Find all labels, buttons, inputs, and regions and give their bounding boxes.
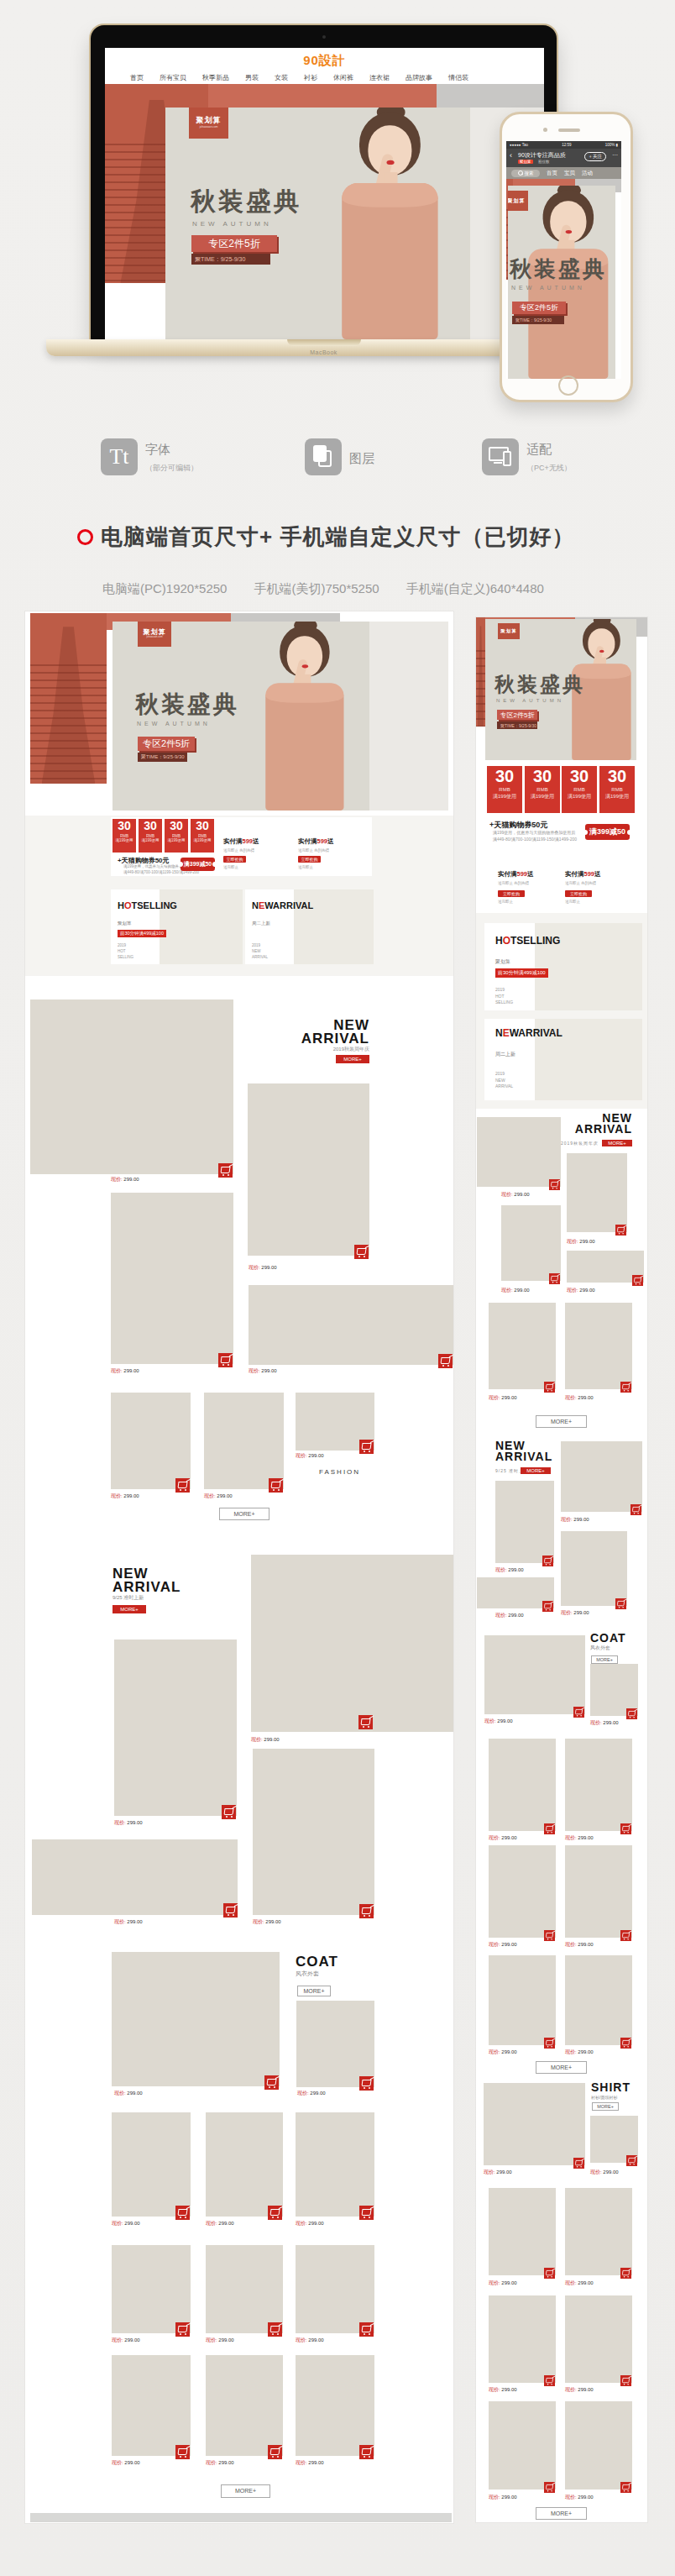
product-price: 现价: 299.00: [565, 2386, 594, 2394]
font-icon: Tt: [101, 438, 138, 475]
add-to-cart-button[interactable]: [573, 2158, 584, 2169]
product-image-placeholder[interactable]: [565, 2295, 632, 2383]
product-price: 现价: 299.00: [567, 1287, 595, 1294]
add-to-cart-button[interactable]: [632, 1275, 643, 1286]
product-price: 现价: 299.00: [489, 2494, 517, 2501]
add-to-cart-button[interactable]: [544, 2038, 555, 2049]
feature-font: Tt 字体（部分可编辑）: [101, 438, 198, 475]
product-price: 现价: 299.00: [111, 1367, 139, 1375]
add-to-cart-button[interactable]: [615, 1598, 626, 1609]
product-image-placeholder[interactable]: [489, 2188, 556, 2275]
nav-item[interactable]: 男装: [245, 73, 259, 82]
add-to-cart-button[interactable]: [544, 1930, 555, 1941]
iphone-mockup: ●●●●● Tao 12:59 100% ▮ ‹ 90设计专注高品质 聚划算 粉…: [500, 112, 633, 402]
add-to-cart-button[interactable]: [359, 2206, 374, 2220]
banner[interactable]: 聚划算 秋装盛典 NEW AUTUMN 专区2件5折 聚TIME：9/25-9/…: [485, 619, 636, 760]
add-to-cart-button[interactable]: [359, 2076, 374, 2091]
voucher-line: 满449-80/满700-100/满1199-150/满1499-200: [493, 837, 577, 842]
product-price: 现价: 299.00: [489, 2280, 517, 2287]
headline: 电脑端首页尺寸+ 手机端自定义尺寸（已切好）: [77, 522, 574, 552]
model-photo: [337, 110, 447, 339]
page-footer: [30, 2513, 452, 2522]
coupon-30rmb[interactable]: 30RMB满199使用: [562, 766, 597, 813]
more-button[interactable]: MORE+: [536, 1415, 587, 1428]
add-to-cart-button[interactable]: [359, 2445, 374, 2459]
banner-subtitle: NEW AUTUMN: [511, 285, 585, 291]
add-to-cart-button[interactable]: [269, 1478, 283, 1493]
product-image-placeholder[interactable]: [296, 2355, 374, 2456]
gift-note: 送完即止: [498, 900, 513, 904]
banner-title: 秋装盛典: [510, 254, 607, 284]
add-to-cart-button[interactable]: [264, 2075, 279, 2090]
gift-note: 送完即止: [223, 865, 238, 869]
coupon-30rmb[interactable]: 30RMB满199使用: [165, 819, 188, 853]
product-image-placeholder[interactable]: [111, 1393, 191, 1489]
product-image-placeholder[interactable]: [32, 1839, 238, 1915]
add-to-cart-button[interactable]: [626, 1708, 637, 1719]
product-image-placeholder[interactable]: [484, 1635, 585, 1714]
product-image-placeholder[interactable]: [489, 1845, 556, 1938]
more-button[interactable]: MORE+: [521, 1467, 551, 1474]
gift-offer: 实付满599送 送完即止 先到先得: [565, 864, 601, 885]
product-price: 现价: 299.00: [501, 1191, 530, 1199]
coupon-30rmb[interactable]: 30RMB满199使用: [191, 819, 214, 853]
add-to-cart-button[interactable]: [626, 2155, 637, 2166]
product-price: 现价: 299.00: [561, 1609, 589, 1617]
add-to-cart-button[interactable]: [175, 2445, 190, 2459]
product-price: 现价: 299.00: [561, 1516, 589, 1524]
shop-title: 90设计专注高品质: [518, 151, 566, 160]
product-price: 现价: 299.00: [204, 1493, 233, 1500]
poster-canvas: 90設計 首页所有宝贝秋季新品男装女装衬衫休闲裤连衣裙品牌故事情侣装 聚划算ju…: [0, 0, 675, 2576]
add-to-cart-button[interactable]: [573, 1707, 584, 1718]
juhuasuan-badge: 聚划算juhuasuan.com: [189, 108, 228, 139]
battery-label: 100% ▮: [605, 143, 618, 147]
product-image-placeholder[interactable]: [489, 2295, 556, 2383]
product-image-placeholder[interactable]: [253, 1749, 374, 1915]
follow-button[interactable]: ＋关注: [584, 152, 607, 161]
banner-subtitle: NEW AUTUMN: [137, 721, 211, 727]
product-image-placeholder[interactable]: [114, 1640, 237, 1816]
banner-subtitle: NEW AUTUMN: [496, 698, 564, 703]
add-to-cart-button[interactable]: [544, 1382, 555, 1393]
add-to-cart-button[interactable]: [549, 1273, 560, 1284]
more-button[interactable]: MORE+: [536, 2507, 587, 2520]
add-to-cart-button[interactable]: [620, 2482, 631, 2493]
more-icon[interactable]: ⋯: [612, 152, 618, 159]
add-to-cart-button[interactable]: [358, 1715, 373, 1729]
banner-title: 秋装盛典: [494, 671, 585, 698]
product-price: 现价: 299.00: [590, 1719, 619, 1727]
product-price: 现价: 299.00: [253, 1918, 281, 1926]
add-to-cart-button[interactable]: [544, 2482, 555, 2493]
product-price: 现价: 299.00: [114, 2090, 143, 2097]
add-to-cart-button[interactable]: [175, 2322, 190, 2337]
banner-title: 秋装盛典: [135, 689, 239, 721]
add-to-cart-button[interactable]: [218, 1163, 233, 1178]
product-image-placeholder[interactable]: [112, 1952, 280, 2086]
product-image-placeholder[interactable]: [112, 2245, 191, 2333]
nav-item[interactable]: 休闲裤: [333, 73, 353, 82]
add-to-cart-button[interactable]: [542, 1556, 553, 1566]
product-price: 现价: 299.00: [501, 1287, 530, 1294]
product-image-placeholder[interactable]: [30, 999, 233, 1174]
juhuasuan-badge: 聚划算: [498, 623, 520, 639]
product-price: 现价: 299.00: [206, 2220, 234, 2227]
product-image-placeholder[interactable]: [561, 1441, 642, 1512]
camera-icon: [543, 128, 547, 132]
add-to-cart-button[interactable]: [542, 1601, 553, 1612]
grab-button[interactable]: 立即抢购: [498, 890, 525, 897]
product-image-placeholder[interactable]: [206, 2245, 283, 2333]
banner-cta-button[interactable]: 专区2件5折: [191, 235, 277, 252]
bullet-icon: [77, 529, 93, 545]
banner-cta-button[interactable]: 专区2件5折: [138, 737, 195, 751]
product-image-placeholder[interactable]: [565, 2401, 632, 2489]
carrier-label: ●●●●● Tao: [510, 143, 528, 147]
product-image-placeholder[interactable]: [251, 1555, 453, 1732]
product-image-placeholder[interactable]: [489, 1303, 556, 1389]
grab-button[interactable]: 立即抢购: [298, 856, 321, 863]
product-price: 现价: 299.00: [296, 2459, 324, 2467]
coupon-30rmb[interactable]: 30RMB满199使用: [599, 766, 635, 813]
dimension-specs: 电脑端(PC)1920*5250 手机端(美切)750*5250 手机端(自定义…: [102, 581, 544, 597]
macbook-screen: 90設計 首页所有宝贝秋季新品男装女装衬衫休闲裤连衣裙品牌故事情侣装 聚划算ju…: [105, 48, 544, 339]
headline-text: 电脑端首页尺寸+ 手机端自定义尺寸（已切好）: [101, 522, 574, 552]
product-price: 现价: 299.00: [206, 2459, 234, 2467]
nav-item[interactable]: 品牌故事: [406, 73, 432, 82]
product-image-placeholder[interactable]: [565, 1303, 632, 1389]
product-price: 现价: 299.00: [489, 1834, 517, 1842]
section-new-arrival-2: NEWARRIVAL 9/25 准时上新: [112, 1567, 181, 1601]
nav-item[interactable]: 连衣裙: [369, 73, 390, 82]
add-to-cart-button[interactable]: [268, 2445, 282, 2459]
more-button[interactable]: MORE+: [591, 1655, 618, 1664]
tab-item[interactable]: 活动: [582, 170, 593, 177]
add-to-cart-button[interactable]: [222, 1805, 236, 1819]
juhuasuan-badge: 聚划算juhuasuan.com: [138, 622, 171, 647]
banner-time: 聚TIME：9/25-9/30: [512, 316, 564, 324]
banner-time: 聚TIME：9/25-9/30: [191, 254, 270, 265]
banner-title: 秋装盛典: [191, 185, 301, 219]
product-price: 现价: 299.00: [251, 1736, 280, 1744]
feature-sub: （PC+无线）: [526, 463, 572, 474]
product-price: 现价: 299.00: [296, 2220, 324, 2227]
add-to-cart-button[interactable]: [620, 1382, 631, 1393]
model-photo: [262, 623, 351, 811]
status-bar: ●●●●● Tao 12:59 100% ▮: [506, 141, 621, 149]
section-new-arrival-1: NEWARRIVAL 2019秋装周年庆: [301, 1019, 369, 1052]
product-price: 现价: 299.00: [296, 1452, 324, 1460]
banner-subtitle: NEW AUTUMN: [192, 220, 272, 228]
product-image-placeholder[interactable]: [565, 2188, 632, 2275]
product-price: 现价: 299.00: [111, 1493, 139, 1500]
product-image-placeholder[interactable]: [249, 1285, 453, 1365]
add-to-cart-button[interactable]: [268, 2322, 282, 2337]
search-input[interactable]: 搜索: [511, 170, 540, 177]
add-to-cart-button[interactable]: [438, 1354, 453, 1368]
product-image-placeholder[interactable]: [296, 2001, 374, 2087]
section-sub: 2019秋装周年庆: [561, 1141, 599, 1146]
nav-item[interactable]: 首页: [130, 73, 144, 82]
product-image-placeholder[interactable]: [296, 2245, 374, 2333]
gift-offer: 实付满599送 送完即止 先到先得: [223, 832, 259, 853]
more-button[interactable]: MORE+: [112, 1605, 146, 1613]
hot-selling-card[interactable]: HOTSELLING 聚划算 前30分钟满499减100 2019HOTSELL…: [111, 889, 243, 964]
nav-item[interactable]: 情侣装: [448, 73, 468, 82]
product-image-placeholder[interactable]: [489, 1955, 556, 2045]
product-price: 现价: 299.00: [489, 1941, 517, 1949]
product-image-placeholder[interactable]: [561, 1531, 627, 1606]
eiffel-image: [476, 617, 485, 727]
product-price: 现价: 299.00: [565, 2280, 594, 2287]
tab-item[interactable]: 首页: [547, 170, 557, 177]
add-to-cart-button[interactable]: [175, 2206, 190, 2220]
coupon-30rmb[interactable]: 30RMB满199使用: [139, 819, 162, 853]
new-arrival-card[interactable]: NEWARRIVAL 周二上新 2019NEWARRIVAL: [245, 889, 374, 964]
banner-faded-right: [369, 622, 448, 811]
feature-layers: 图层: [305, 438, 374, 475]
fashion-label: FASHION: [319, 1468, 360, 1476]
product-image-placeholder[interactable]: [477, 1117, 561, 1187]
coupon-30rmb[interactable]: 30RMB满199使用: [112, 819, 136, 853]
product-image-placeholder[interactable]: [112, 2355, 191, 2456]
webcam-icon: [322, 35, 326, 39]
product-price: 现价: 299.00: [296, 2337, 324, 2344]
section-new-arrival-2: NEWARRIVAL: [495, 1440, 552, 1462]
product-image-placeholder[interactable]: [495, 1481, 554, 1563]
product-price: 现价: 299.00: [206, 2337, 234, 2344]
add-to-cart-button[interactable]: [620, 1823, 631, 1834]
gift-note: 送完即止: [565, 900, 580, 904]
gift-note: 送完即止: [298, 865, 313, 869]
product-price: 现价: 299.00: [565, 1834, 594, 1842]
add-to-cart-button[interactable]: [631, 1504, 641, 1515]
product-image-placeholder[interactable]: [484, 2083, 585, 2165]
product-price: 现价: 299.00: [489, 1394, 517, 1402]
product-price: 现价: 299.00: [111, 1176, 139, 1183]
pc-page-preview[interactable]: 聚划算juhuasuan.com 秋装盛典 NEW AUTUMN 专区2件5折 …: [25, 611, 453, 2523]
product-price: 现价: 299.00: [489, 2386, 517, 2394]
add-to-cart-button[interactable]: [549, 1179, 560, 1190]
add-to-cart-button[interactable]: [359, 2322, 374, 2337]
add-to-cart-button[interactable]: [359, 1440, 374, 1454]
product-price: 现价: 299.00: [484, 1718, 513, 1725]
more-button[interactable]: MORE+: [592, 2102, 619, 2111]
add-to-cart-button[interactable]: [223, 1903, 238, 1918]
home-button[interactable]: [558, 375, 578, 396]
product-image-placeholder[interactable]: [206, 2112, 283, 2217]
eiffel-image: [30, 613, 107, 784]
product-image-placeholder[interactable]: [489, 1739, 556, 1831]
shop-header: ‹ 90设计专注高品质 聚划算 粉丝数 ＋关注 ⋯: [506, 149, 621, 167]
banner[interactable]: 聚划算juhuasuan.com 秋装盛典 NEW AUTUMN 专区2件5折 …: [165, 108, 470, 339]
feature-adapt: 适配（PC+无线）: [482, 438, 572, 475]
nav-item[interactable]: 女装: [275, 73, 288, 82]
more-button[interactable]: MORE+: [297, 1986, 331, 1996]
coupon-30rmb[interactable]: 30RMB满199使用: [487, 766, 522, 813]
coupon-ticket[interactable]: 满399减50: [585, 824, 630, 840]
feature-label: 图层: [349, 451, 374, 467]
product-price: 现价: 299.00: [112, 2220, 140, 2227]
new-arrival-card[interactable]: NEWARRIVAL 周二上新 2019NEWARRIVAL: [484, 1019, 642, 1100]
nav-item[interactable]: 秋季新品: [202, 73, 229, 82]
devices-icon: [482, 438, 519, 475]
section-new-arrival-1: NEWARRIVAL: [575, 1113, 632, 1135]
banner-cta-button[interactable]: 专区2件5折: [497, 710, 537, 720]
banner-strip-gray: [437, 84, 544, 108]
product-price: 现价: 299.00: [489, 2049, 517, 2056]
add-to-cart-button[interactable]: [544, 2375, 555, 2386]
banner[interactable]: 聚划算 秋装盛典 NEW AUTUMN 专区2件5折 聚TIME：9/25-9/…: [508, 186, 615, 379]
product-image-placeholder[interactable]: [489, 2401, 556, 2489]
add-to-cart-button[interactable]: [175, 1478, 190, 1493]
dim-mobile-cut: 手机端(美切)750*5250: [254, 581, 379, 597]
product-price: 现价: 299.00: [249, 1264, 277, 1272]
grab-button[interactable]: 立即抢购: [565, 890, 592, 897]
gift-offer: 实付满599送 送完即止 先到先得: [298, 832, 334, 853]
nav-item[interactable]: 所有宝贝: [160, 73, 186, 82]
feature-label: 字体: [145, 442, 198, 458]
shop-fans: 粉丝数: [538, 160, 550, 164]
dim-mobile-custom: 手机端(自定义)640*4480: [406, 581, 544, 597]
layers-icon: [305, 438, 342, 475]
juhuasuan-badge: 聚划算: [508, 191, 528, 211]
product-image-placeholder[interactable]: [567, 1153, 627, 1232]
feature-sub: （部分可编辑）: [145, 463, 198, 474]
site-logo: 90設計: [105, 53, 544, 69]
product-image-placeholder[interactable]: [565, 1955, 632, 2045]
more-button[interactable]: MORE+: [221, 2484, 270, 2498]
gift-offer: 实付满599送 送完即止 先到先得: [498, 864, 534, 885]
product-price: 现价: 299.00: [112, 2459, 140, 2467]
product-image-placeholder[interactable]: [111, 1193, 233, 1364]
product-price: 现价: 299.00: [565, 1394, 594, 1402]
iphone-screen: ●●●●● Tao 12:59 100% ▮ ‹ 90设计专注高品质 聚划算 粉…: [506, 141, 621, 379]
product-price: 现价: 299.00: [590, 2169, 619, 2176]
add-to-cart-button[interactable]: [620, 2268, 631, 2279]
shop-tag-badge: 聚划算: [518, 160, 533, 164]
product-price: 现价: 299.00: [249, 1367, 277, 1375]
banner-time: 聚TIME：9/25-9/30: [138, 753, 187, 762]
shop-tabs: 搜索 首页宝贝活动: [506, 167, 621, 179]
speaker-icon: [558, 129, 580, 132]
more-button[interactable]: MORE+: [336, 1055, 369, 1063]
product-image-placeholder[interactable]: [112, 2112, 191, 2217]
add-to-cart-button[interactable]: [268, 2206, 282, 2220]
nav-item[interactable]: 衬衫: [304, 73, 317, 82]
section-coat: COAT 风衣外套: [590, 1633, 626, 1650]
site-nav: 首页所有宝贝秋季新品男装女装衬衫休闲裤连衣裙品牌故事情侣装: [130, 73, 536, 82]
add-to-cart-button[interactable]: [620, 1930, 631, 1941]
add-to-cart-button[interactable]: [615, 1225, 626, 1236]
product-price: 现价: 299.00: [567, 1238, 595, 1246]
product-price: 现价: 299.00: [495, 1612, 524, 1619]
tab-item[interactable]: 宝贝: [564, 170, 575, 177]
section-shirt: SHIRT 衬衫/圆领衬衫: [591, 2082, 631, 2099]
product-image-placeholder[interactable]: [206, 2355, 283, 2456]
more-button[interactable]: MORE+: [536, 2061, 587, 2074]
product-price: 现价: 299.00: [297, 2090, 326, 2097]
add-to-cart-button[interactable]: [620, 2038, 631, 2049]
back-icon[interactable]: ‹: [510, 151, 512, 160]
product-price: 现价: 299.00: [565, 1941, 594, 1949]
add-to-cart-button[interactable]: [354, 1245, 369, 1259]
product-image-placeholder[interactable]: [248, 1083, 369, 1256]
dim-pc: 电脑端(PC)1920*5250: [102, 581, 227, 597]
coupon-30rmb[interactable]: 30RMB满199使用: [525, 766, 560, 813]
product-price: 现价: 299.00: [114, 1918, 143, 1926]
add-to-cart-button[interactable]: [359, 1904, 374, 1918]
banner[interactable]: 聚划算juhuasuan.com 秋装盛典 NEW AUTUMN 专区2件5折 …: [112, 622, 369, 811]
banner-cta-button[interactable]: 专区2件5折: [512, 302, 566, 314]
clock-label: 12:59: [562, 143, 571, 147]
product-price: 现价: 299.00: [112, 2337, 140, 2344]
feature-label: 适配: [526, 442, 572, 458]
product-price: 现价: 299.00: [114, 1819, 143, 1827]
grab-button[interactable]: 立即抢购: [223, 856, 246, 863]
product-image-placeholder[interactable]: [565, 1845, 632, 1938]
banner-strip: [208, 84, 437, 108]
coupon-ticket[interactable]: 满399减50: [181, 858, 215, 871]
banner-time: 聚TIME：9/25-9/30: [497, 721, 537, 729]
section-coat: COAT 风衣外套: [296, 1955, 338, 1976]
hot-selling-card[interactable]: HOTSELLING 聚划算 前30分钟满499减100 2019HOTSELL…: [484, 923, 642, 1010]
product-image-placeholder[interactable]: [501, 1205, 561, 1281]
product-image-placeholder[interactable]: [565, 1739, 632, 1831]
add-to-cart-button[interactable]: [544, 2268, 555, 2279]
more-button[interactable]: MORE+: [602, 1140, 632, 1146]
product-image-placeholder[interactable]: [204, 1393, 284, 1489]
more-button[interactable]: MORE+: [219, 1508, 269, 1520]
product-image-placeholder[interactable]: [296, 2112, 374, 2217]
product-price: 现价: 299.00: [484, 2169, 512, 2176]
product-price: 现价: 299.00: [565, 2494, 594, 2501]
product-price: 现价: 299.00: [565, 2049, 594, 2056]
add-to-cart-button[interactable]: [218, 1353, 233, 1367]
voucher-line: 满199使用，优惠券与天猫购物券叠加使用后: [493, 830, 575, 835]
mobile-page-preview[interactable]: 聚划算 秋装盛典 NEW AUTUMN 专区2件5折 聚TIME：9/25-9/…: [476, 617, 647, 2522]
add-to-cart-button[interactable]: [620, 2375, 631, 2386]
search-icon: [518, 171, 523, 176]
add-to-cart-button[interactable]: [544, 1823, 555, 1834]
product-price: 现价: 299.00: [495, 1566, 524, 1574]
